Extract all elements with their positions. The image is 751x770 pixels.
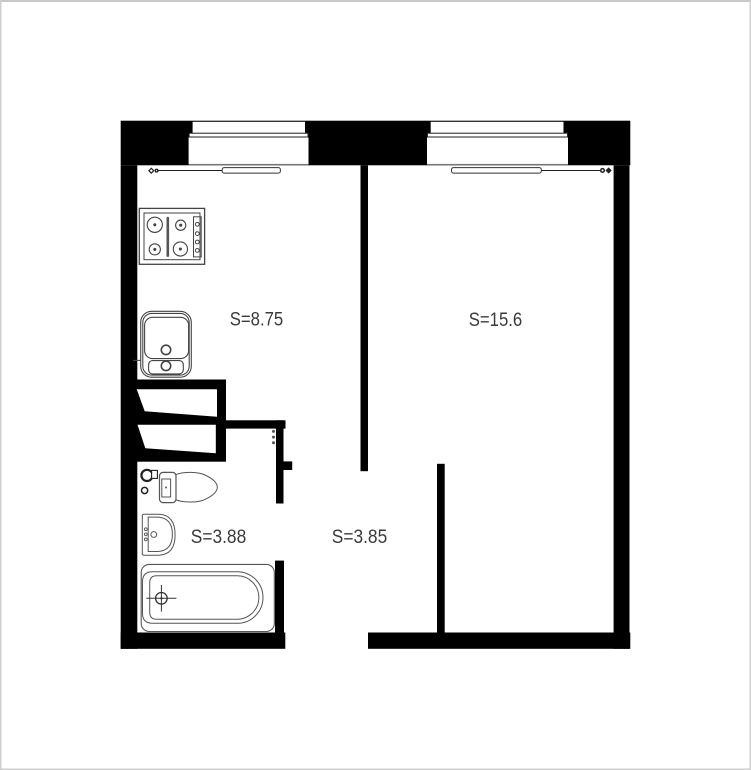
svg-text:S=3.88: S=3.88 <box>191 526 247 548</box>
svg-text:S=8.75: S=8.75 <box>230 308 284 330</box>
svg-text:S=15.6: S=15.6 <box>469 309 523 331</box>
svg-text:S=3.85: S=3.85 <box>332 526 388 548</box>
